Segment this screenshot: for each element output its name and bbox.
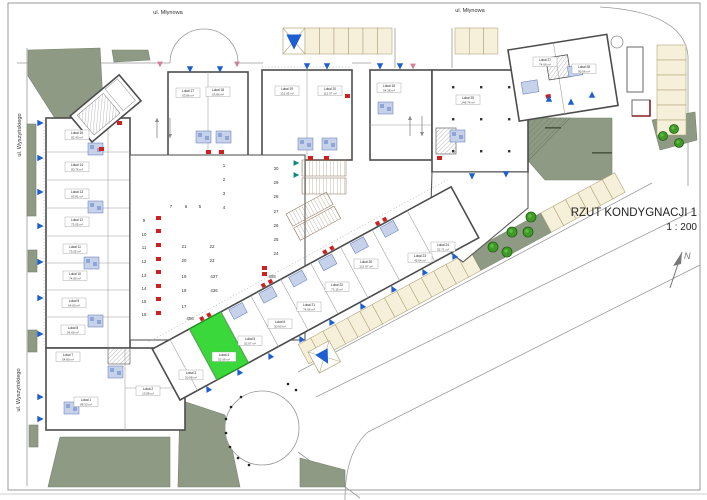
svg-text:Lokal 6: Lokal 6 — [275, 320, 286, 324]
tree-icon — [502, 247, 512, 257]
stall-number: 16 — [142, 312, 147, 317]
svg-text:Lokal 1: Lokal 1 — [81, 398, 92, 402]
building-northeast — [508, 34, 618, 121]
unit-label: Lokal 1365.81 m² — [65, 189, 89, 199]
svg-text:54.38 m²: 54.38 m² — [383, 88, 395, 92]
bollard-dot — [287, 383, 290, 386]
svg-text:Lokal 5: Lokal 5 — [245, 337, 256, 341]
stall-number: 27 — [274, 209, 279, 214]
stall-number: 406 — [186, 316, 194, 321]
svg-text:Lokal 19: Lokal 19 — [281, 87, 293, 91]
red-door-mark — [219, 150, 224, 154]
buildings-layer — [44, 34, 650, 465]
red-door-mark — [156, 270, 161, 274]
svg-text:Lokal 13: Lokal 13 — [71, 190, 83, 194]
drawing-scale: 1 : 200 — [666, 222, 697, 233]
red-door-mark — [117, 121, 122, 125]
stall-number: 30 — [274, 166, 279, 171]
unit-label: Lokal 552.07 m² — [238, 336, 262, 346]
stall-number: 26 — [274, 223, 279, 228]
svg-text:73.05 m²: 73.05 m² — [69, 249, 81, 253]
entrance-marker-icon — [37, 295, 43, 301]
parking-stall — [363, 28, 378, 54]
unit-label: Lokal 452.06 m² — [212, 352, 236, 362]
stall-number: 21 — [182, 244, 187, 249]
unit-label: Lokal 1074.80 m² — [63, 271, 87, 281]
red-door-mark — [156, 284, 161, 288]
red-door-mark — [437, 156, 442, 160]
parking-stall — [657, 60, 686, 75]
svg-text:74.06 m²: 74.06 m² — [303, 307, 315, 311]
stall-number: 18 — [182, 288, 187, 293]
street-label-wyszynskiego-2: ul. Wyszyńskiego — [16, 368, 22, 411]
column-dot — [508, 118, 510, 120]
unit-label: Lokal 350.08 m² — [179, 370, 203, 380]
parking-stall — [455, 28, 469, 54]
red-door-mark — [324, 156, 329, 160]
entrance-marker-icon — [324, 63, 330, 69]
red-door-mark — [206, 150, 211, 154]
unit-label: Lokal 26121.97 m² — [354, 259, 378, 269]
bath-core — [88, 201, 103, 213]
svg-text:53.86 m²: 53.86 m² — [212, 92, 224, 96]
unit-label: Lokal 2273.16 m² — [325, 282, 349, 292]
tree-icon — [488, 242, 498, 252]
svg-text:Lokal 20: Lokal 20 — [324, 87, 336, 91]
column-dot — [480, 118, 482, 120]
svg-text:Lokal 24: Lokal 24 — [437, 243, 449, 247]
column-dot — [508, 86, 510, 88]
unit-label: Lokal 1753.86 m² — [176, 88, 200, 98]
unit-label: Lokal 650.93 m² — [268, 319, 292, 329]
tree-icon — [523, 227, 533, 237]
bath-core — [298, 138, 313, 150]
svg-text:54.60 m²: 54.60 m² — [68, 303, 80, 307]
unit-label: Lokal 1273.05 m² — [65, 217, 89, 227]
floorplan-page: 1234765910111213141516302928272625242122… — [0, 0, 707, 500]
stall-number: 14 — [142, 286, 147, 291]
svg-text:Lokal 28: Lokal 28 — [578, 65, 590, 69]
stall-number: 29 — [274, 180, 279, 185]
unit-label: Lokal 25248.74 m² — [456, 95, 480, 105]
svg-text:50.93 m²: 50.93 m² — [274, 324, 286, 328]
svg-text:131.05 m²: 131.05 m² — [280, 91, 294, 95]
svg-text:Lokal 26: Lokal 26 — [360, 260, 372, 264]
svg-text:80.76 m²: 80.76 m² — [71, 167, 83, 171]
street-label-mlynowa-2: ul. Młynowa — [455, 8, 485, 14]
stall-number: 408 — [268, 274, 276, 279]
svg-text:88.33 m²: 88.33 m² — [80, 402, 92, 406]
stall-number: 22 — [210, 244, 215, 249]
street-label-wyszynskiego-1: ul. Wyszyńskiego — [17, 113, 23, 156]
column-dot — [480, 150, 482, 152]
svg-text:Lokal 2: Lokal 2 — [143, 387, 154, 391]
bollard-dot — [295, 389, 298, 392]
unit-label: Lokal 2880.56 m² — [572, 64, 596, 74]
driveway-marker-icon — [234, 62, 240, 68]
bath-core — [378, 102, 393, 114]
parking-stall — [378, 28, 393, 54]
svg-text:54.60 m²: 54.60 m² — [67, 330, 79, 334]
svg-text:Lokal 18: Lokal 18 — [212, 88, 224, 92]
entrance-marker-icon — [37, 394, 43, 400]
tree-icon — [526, 212, 536, 222]
unit-label: Lokal 754.80 m² — [56, 352, 80, 362]
svg-text:Lokal 4: Lokal 4 — [219, 353, 230, 357]
red-door-mark — [99, 147, 104, 151]
svg-text:73.05 m²: 73.05 m² — [71, 222, 83, 226]
stall-number: 23 — [210, 258, 215, 263]
red-door-mark — [156, 311, 161, 315]
site-plan-svg: 1234765910111213141516302928272625242122… — [0, 0, 707, 500]
stall-number: 15 — [142, 299, 147, 304]
green-text-mark — [545, 127, 561, 129]
svg-text:65.81 m²: 65.81 m² — [71, 194, 83, 198]
stall-number: 11 — [142, 245, 147, 250]
stall-number: 13 — [142, 273, 147, 278]
svg-text:Lokal 22: Lokal 22 — [331, 283, 343, 287]
red-door-mark — [156, 229, 161, 233]
bath-core — [450, 130, 465, 142]
svg-text:52.06 m²: 52.06 m² — [218, 357, 230, 361]
tree-icon — [507, 227, 517, 237]
entrance-marker-icon — [37, 120, 43, 126]
svg-text:Lokal 16: Lokal 16 — [383, 84, 395, 88]
parking-stall — [320, 28, 335, 54]
svg-text:45.64 m²: 45.64 m² — [414, 258, 426, 262]
svg-text:82.40 m²: 82.40 m² — [71, 135, 83, 139]
parking-stall — [657, 90, 686, 105]
unit-label: Lokal 854.60 m² — [61, 325, 85, 335]
svg-text:52.71 m²: 52.71 m² — [437, 247, 449, 251]
unit-label: Lokal 2345.64 m² — [408, 253, 432, 263]
unit-label: Lokal 2774.06 m² — [533, 57, 557, 67]
svg-text:52.07 m²: 52.07 m² — [244, 341, 256, 345]
svg-text:Lokal 7: Lokal 7 — [63, 353, 74, 357]
svg-text:Lokal 14: Lokal 14 — [71, 163, 83, 167]
column-dot — [508, 150, 510, 152]
unit-label: Lokal 213.88 m² — [136, 386, 160, 396]
entrance-marker-icon — [37, 416, 43, 422]
parking-stall — [657, 105, 686, 120]
bath-core — [84, 257, 99, 269]
svg-text:13.88 m²: 13.88 m² — [142, 391, 154, 395]
svg-text:Lokal 23: Lokal 23 — [414, 254, 426, 258]
entrance-marker-icon — [37, 189, 43, 195]
bollard-dot — [248, 464, 251, 467]
manhole — [611, 36, 623, 48]
parking-stall — [469, 28, 483, 54]
svg-text:54.80 m²: 54.80 m² — [62, 357, 74, 361]
red-door-mark — [345, 94, 350, 98]
stall-number: 17 — [182, 304, 187, 309]
svg-text:Lokal 12: Lokal 12 — [71, 218, 83, 222]
drawing-title: RZUT KONDYGNACJI 1 — [571, 207, 697, 219]
driveway-marker-icon — [410, 64, 416, 70]
stall-number: 24 — [274, 251, 279, 256]
red-door-mark — [156, 257, 161, 261]
stall-number: 20 — [182, 258, 187, 263]
bath-core — [322, 138, 337, 150]
unit-label: Lokal 1582.40 m² — [65, 130, 89, 140]
svg-text:248.74 m²: 248.74 m² — [461, 100, 475, 104]
green-area — [28, 250, 37, 272]
red-door-mark — [156, 243, 161, 247]
unit-label: Lokal 19131.05 m² — [275, 86, 299, 96]
bath-core — [88, 315, 103, 327]
green-area — [29, 425, 38, 447]
stairs — [108, 348, 130, 364]
stall-number: 436 — [210, 288, 218, 293]
svg-text:Lokal 21: Lokal 21 — [303, 303, 315, 307]
svg-text:Lokal 11: Lokal 11 — [69, 245, 81, 249]
unit-label: Lokal 954.60 m² — [62, 298, 86, 308]
unit-label: Lokal 1173.05 m² — [63, 244, 87, 254]
ramp-arrow-head — [155, 118, 159, 122]
parking-stall — [334, 28, 349, 54]
north-arrow: N — [670, 251, 691, 288]
tree-icon — [670, 125, 679, 134]
green-area — [27, 124, 36, 216]
bath-core — [521, 80, 539, 94]
column-dot — [452, 150, 454, 152]
turning-circle — [225, 391, 299, 465]
svg-text:121.97 m²: 121.97 m² — [359, 264, 373, 268]
driveway-marker-icon — [157, 62, 163, 68]
shelter — [627, 47, 643, 92]
utility-box — [632, 100, 650, 116]
red-door-mark — [156, 216, 161, 220]
svg-text:Lokal 17: Lokal 17 — [182, 89, 194, 93]
bath-core — [216, 131, 231, 143]
tree-icon — [675, 139, 684, 148]
svg-text:53.86 m²: 53.86 m² — [182, 93, 194, 97]
bollard-dot — [240, 396, 243, 399]
svg-text:Lokal 8: Lokal 8 — [68, 326, 79, 330]
bollard-dot — [225, 432, 228, 435]
storage-cells — [302, 160, 346, 194]
parking-stall — [305, 28, 320, 54]
svg-text:Lokal 15: Lokal 15 — [71, 131, 83, 135]
svg-text:73.16 m²: 73.16 m² — [331, 287, 343, 291]
street-label-mlynowa-1: ul. Młynowa — [153, 10, 183, 16]
svg-text:Lokal 10: Lokal 10 — [69, 272, 81, 276]
bath-core — [196, 131, 211, 143]
svg-text:74.80 m²: 74.80 m² — [69, 276, 81, 280]
stall-number: 10 — [142, 232, 147, 237]
stall-number: 25 — [274, 237, 279, 242]
green-text-mark — [592, 152, 612, 154]
bollard-dot — [225, 418, 228, 421]
parking-stall — [657, 45, 686, 60]
stall-number: 19 — [182, 274, 187, 279]
unit-label: Lokal 20112.37 m² — [318, 86, 342, 96]
svg-text:112.37 m²: 112.37 m² — [323, 91, 336, 95]
svg-text:80.56 m²: 80.56 m² — [578, 69, 590, 73]
unit-label: Lokal 1853.86 m² — [206, 87, 230, 97]
green-area — [112, 50, 150, 62]
svg-text:50.08 m²: 50.08 m² — [185, 375, 197, 379]
entrance-marker-icon — [37, 331, 43, 337]
red-door-mark — [262, 266, 267, 270]
parking-stall — [349, 28, 364, 54]
entrance-marker-icon — [37, 155, 43, 161]
bath-core — [108, 366, 123, 378]
unit-label: Lokal 2452.71 m² — [431, 242, 455, 252]
green-area — [28, 330, 37, 352]
svg-text:Lokal 27: Lokal 27 — [539, 58, 551, 62]
bollard-dot — [237, 457, 240, 460]
green-area — [48, 437, 170, 487]
green-area — [300, 458, 345, 487]
unit-label: Lokal 188.33 m² — [74, 397, 98, 407]
tree-icon — [659, 132, 668, 141]
entrance-marker-icon — [377, 63, 383, 69]
stall-number: 28 — [274, 194, 279, 199]
svg-text:Lokal 25: Lokal 25 — [462, 96, 474, 100]
stall-number: 12 — [142, 259, 147, 264]
column-dot — [452, 86, 454, 88]
parking-stall — [484, 28, 498, 54]
unit-label: Lokal 1480.76 m² — [65, 162, 89, 172]
stall-number: 437 — [210, 274, 218, 279]
svg-text:Lokal 9: Lokal 9 — [69, 299, 80, 303]
unit-label: Lokal 1654.38 m² — [377, 83, 401, 93]
north-label: N — [684, 251, 691, 261]
red-door-mark — [308, 156, 313, 160]
column-dot — [480, 86, 482, 88]
parking-stall — [657, 75, 686, 90]
red-door-mark — [262, 272, 267, 276]
entrance-marker-icon — [397, 63, 403, 69]
entrance-marker-icon — [37, 223, 43, 229]
svg-text:Lokal 3: Lokal 3 — [186, 371, 197, 375]
bollard-dot — [229, 446, 232, 449]
entrance-marker-icon — [304, 63, 310, 69]
bollard-dot — [230, 406, 233, 409]
red-door-mark — [156, 297, 161, 301]
column-dot — [452, 118, 454, 120]
entrance-marker-icon — [37, 259, 43, 265]
unit-label: Lokal 2174.06 m² — [297, 302, 321, 312]
svg-text:74.06 m²: 74.06 m² — [539, 62, 551, 66]
